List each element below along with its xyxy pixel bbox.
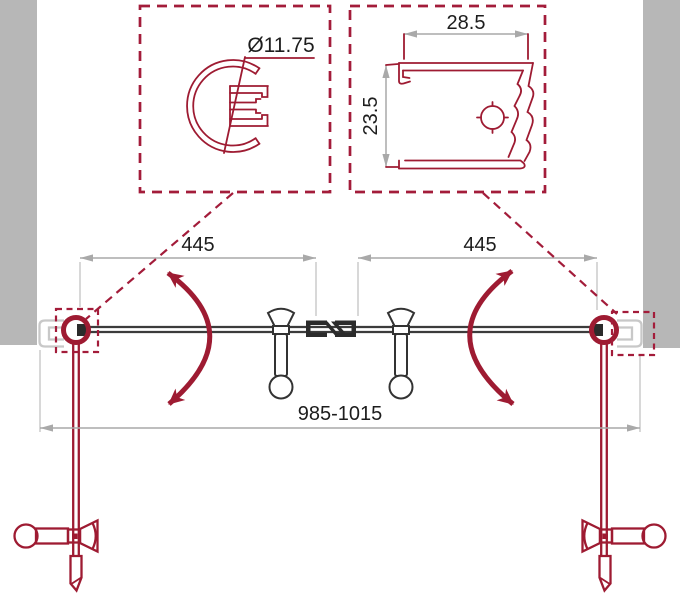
magnet-connector <box>306 321 356 338</box>
knob-left-front <box>15 521 98 552</box>
knob-left-plan <box>268 309 294 399</box>
dim-label-left-panel: 445 <box>181 234 214 256</box>
door-post-right <box>600 343 611 591</box>
shower-door-technical-drawing: 445 445 985-1015 Ø11.75 <box>0 0 680 600</box>
wall-profile-right <box>617 321 642 347</box>
round-profile-section <box>187 57 314 153</box>
wall-left <box>0 0 37 345</box>
callout-leaders <box>86 193 617 319</box>
dim-label-overall: 985-1015 <box>298 403 383 425</box>
detail-callout-left: Ø11.75 <box>140 6 330 192</box>
pivot-left <box>64 318 90 343</box>
wall-profile-section <box>399 63 533 169</box>
drawing-canvas: 445 445 985-1015 Ø11.75 <box>0 0 680 600</box>
callout-left-diameter-label: Ø11.75 <box>247 34 314 57</box>
dimension-overall-width: 985-1015 <box>40 350 640 432</box>
callout-right-width-label: 28.5 <box>447 12 486 34</box>
knob-right-front <box>583 521 666 552</box>
dim-label-right-panel: 445 <box>463 234 496 256</box>
callout-right-width-dim: 28.5 <box>404 12 528 59</box>
door-swing-arrow-right <box>470 271 513 404</box>
wall-right <box>643 0 680 348</box>
wall-profile-left <box>40 321 65 347</box>
door-swing-arrow-left <box>168 273 210 404</box>
callout-right-depth-label: 23.5 <box>360 97 382 136</box>
detail-callout-right: 28.5 23.5 <box>350 6 545 192</box>
callout-right-depth-dim: 23.5 <box>360 64 398 167</box>
door-post-left <box>71 343 82 591</box>
knob-right-plan <box>388 309 414 399</box>
